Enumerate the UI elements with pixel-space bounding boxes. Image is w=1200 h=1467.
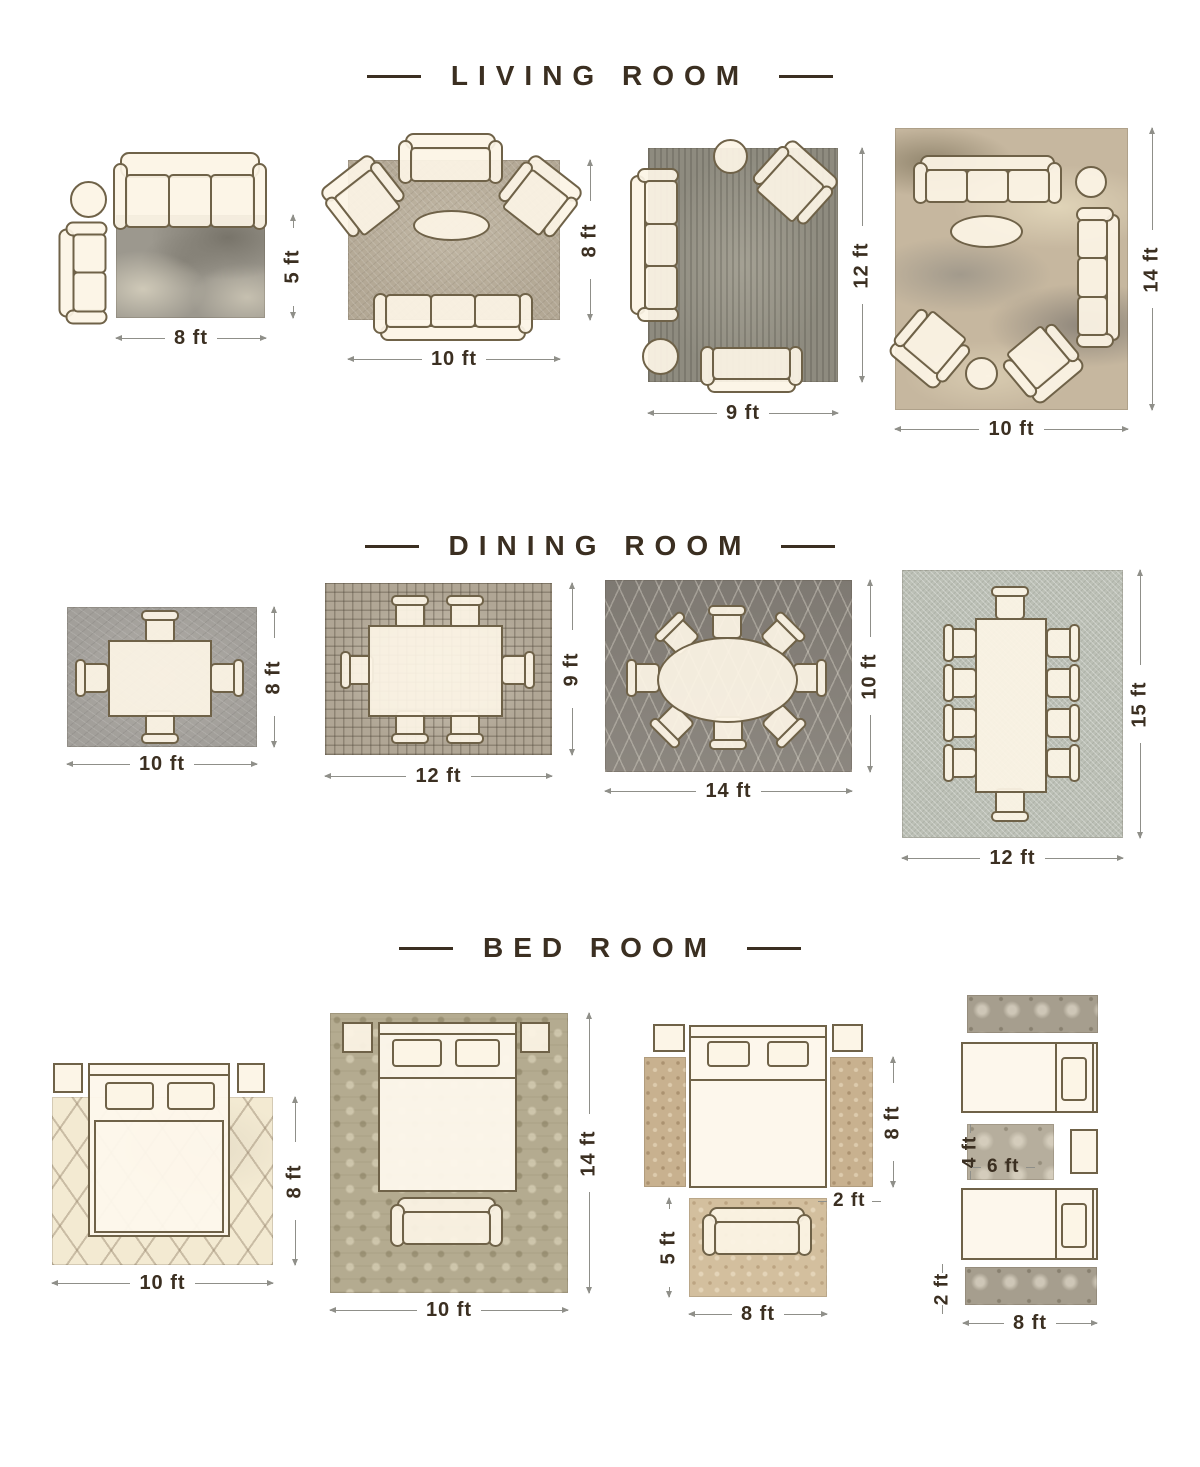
dimension-line bbox=[325, 776, 406, 777]
dimension-line bbox=[67, 764, 130, 765]
dimension-label: 6 ft bbox=[987, 1156, 1020, 1178]
dimension-foot-rug-height: 5 ft bbox=[657, 1198, 681, 1297]
settee bbox=[700, 345, 803, 393]
dimension-label: 2 ft bbox=[930, 1278, 954, 1300]
dimension-width: 9 ft bbox=[648, 402, 838, 424]
dimension-label: 14 ft bbox=[705, 780, 751, 803]
dimension-label: 14 ft bbox=[1140, 239, 1164, 299]
pillow bbox=[167, 1082, 215, 1110]
sofa-seat bbox=[714, 1221, 800, 1255]
nightstand bbox=[237, 1063, 265, 1093]
dimension-line bbox=[274, 716, 275, 747]
dimension-line bbox=[895, 429, 979, 430]
dimension-line bbox=[116, 338, 165, 339]
bench bbox=[390, 1197, 503, 1248]
dining-chair bbox=[943, 664, 977, 702]
dimension-line bbox=[589, 1192, 590, 1293]
bench bbox=[702, 1207, 812, 1257]
headboard-line bbox=[1092, 1044, 1094, 1111]
title-dash-left bbox=[399, 947, 453, 950]
dining-chair bbox=[943, 624, 977, 662]
sofa-three-seat bbox=[913, 155, 1062, 205]
nightstand bbox=[520, 1022, 550, 1053]
sofa-cushion bbox=[712, 347, 791, 380]
dimension-label: 10 ft bbox=[431, 348, 477, 371]
sofa-cushion bbox=[925, 169, 968, 203]
dining-table bbox=[975, 618, 1047, 793]
nightstand bbox=[832, 1024, 863, 1052]
dining-chair bbox=[943, 704, 977, 742]
dimension-line bbox=[972, 1167, 981, 1168]
dimension-runner-height: 8 ft bbox=[881, 1057, 905, 1187]
dimension-line bbox=[942, 1264, 943, 1273]
dimension-line bbox=[590, 160, 591, 201]
dimension-label: 2 ft bbox=[833, 1190, 866, 1212]
title-dash-right bbox=[781, 545, 835, 548]
dimension-line bbox=[870, 580, 871, 637]
sofa-cushion bbox=[385, 294, 432, 327]
dimension-runner-height: 2 ft bbox=[930, 1264, 954, 1308]
section-title-text: BED ROOM bbox=[483, 932, 717, 964]
pillow bbox=[105, 1082, 154, 1110]
bedside-runner-rug bbox=[644, 1057, 686, 1187]
dimension-line bbox=[589, 1013, 590, 1114]
dimension-line bbox=[818, 1201, 827, 1202]
dimension-line bbox=[348, 359, 422, 360]
dimension-line bbox=[648, 413, 717, 414]
twin-bed bbox=[961, 1042, 1098, 1113]
dimension-width: 10 ft bbox=[67, 753, 257, 775]
pillow bbox=[707, 1041, 750, 1067]
dimension-line bbox=[963, 1323, 1004, 1324]
dining-table bbox=[108, 640, 212, 717]
sofa-seat bbox=[1077, 219, 1108, 336]
dimension-line bbox=[52, 1283, 130, 1284]
sofa-seat bbox=[125, 174, 255, 228]
dimension-line bbox=[217, 338, 266, 339]
sofa-cushion bbox=[210, 174, 255, 228]
sofa-cushion bbox=[474, 294, 521, 327]
sofa-cushion bbox=[1077, 257, 1108, 297]
dimension-line bbox=[689, 1314, 732, 1315]
dining-chair bbox=[75, 659, 109, 697]
dimension-runner-width: 2 ft bbox=[818, 1190, 892, 1212]
sofa-three-seat bbox=[630, 168, 680, 322]
dimension-line bbox=[295, 1097, 296, 1142]
dimension-label: 8 ft bbox=[262, 647, 286, 707]
dining-chair bbox=[991, 586, 1029, 620]
dimension-label: 8 ft bbox=[578, 210, 602, 270]
sofa-cushion bbox=[125, 174, 170, 228]
dining-chair bbox=[391, 595, 429, 629]
dimension-line bbox=[1044, 429, 1128, 430]
runner-rug bbox=[965, 1267, 1097, 1305]
round-side-table bbox=[1075, 166, 1107, 198]
dimension-label: 10 ft bbox=[139, 753, 185, 776]
dimension-width: 10 ft bbox=[330, 1299, 568, 1321]
dimension-label: 15 ft bbox=[1128, 674, 1152, 734]
sofa-seat bbox=[385, 294, 521, 327]
title-dash-right bbox=[747, 947, 801, 950]
sofa-cushion bbox=[714, 1221, 800, 1255]
dimension-line bbox=[669, 1287, 670, 1298]
dining-table bbox=[368, 625, 503, 717]
round-ottoman bbox=[642, 338, 679, 375]
dimension-width: 10 ft bbox=[52, 1272, 273, 1294]
dimension-line bbox=[1140, 570, 1141, 665]
title-dash-left bbox=[365, 545, 419, 548]
dimension-line bbox=[330, 1310, 417, 1311]
dimension-label: 12 ft bbox=[415, 765, 461, 788]
dimension-height: 14 ft bbox=[577, 1013, 601, 1293]
oval-coffee-table bbox=[413, 210, 490, 241]
dimension-height: 8 ft bbox=[578, 160, 602, 320]
dining-chair bbox=[1046, 744, 1080, 782]
dimension-height: 8 ft bbox=[262, 607, 286, 747]
dimension-line bbox=[1056, 1323, 1097, 1324]
section-title-dining-room: DINING ROOM bbox=[0, 530, 1200, 562]
sofa-cushion bbox=[966, 169, 1009, 203]
dimension-line bbox=[761, 791, 852, 792]
sofa-cushion bbox=[72, 234, 106, 275]
sofa-seat bbox=[402, 1211, 491, 1246]
dimension-label: 9 ft bbox=[726, 402, 760, 425]
dimension-line bbox=[1152, 128, 1153, 230]
dimension-label: 8 ft bbox=[881, 1092, 905, 1152]
dimension-line bbox=[893, 1161, 894, 1187]
dimension-line bbox=[1152, 308, 1153, 410]
dimension-width: 14 ft bbox=[605, 780, 852, 802]
dimension-label: 5 ft bbox=[657, 1218, 681, 1278]
dining-chair bbox=[1046, 704, 1080, 742]
section-title-living-room: LIVING ROOM bbox=[0, 60, 1200, 92]
title-dash-right bbox=[779, 75, 833, 78]
dimension-label: 8 ft bbox=[174, 327, 208, 350]
dimension-width: 12 ft bbox=[902, 847, 1123, 869]
sofa-seat bbox=[410, 147, 491, 182]
sofa-cushion bbox=[1077, 219, 1108, 259]
dimension-height: 14 ft bbox=[1140, 128, 1164, 410]
round-ottoman bbox=[965, 357, 998, 390]
twin-bed bbox=[961, 1188, 1098, 1260]
oval-dining-table bbox=[657, 637, 798, 723]
dining-chair bbox=[141, 610, 179, 644]
dimension-line bbox=[862, 304, 863, 382]
rug-size-guide-poster: LIVING ROOM 5 ft 8 ft bbox=[0, 0, 1200, 1467]
dimension-line bbox=[1026, 1167, 1035, 1168]
dimension-label: 8 ft bbox=[741, 1303, 775, 1326]
dimension-label: 10 ft bbox=[139, 1272, 185, 1295]
dimension-label: 8 ft bbox=[1013, 1312, 1047, 1335]
sofa-cushion bbox=[644, 223, 678, 268]
sofa-cushion bbox=[410, 147, 491, 182]
loveseat-two-seat bbox=[59, 222, 109, 325]
sofa-three-seat bbox=[373, 292, 533, 341]
dining-chair bbox=[501, 651, 535, 689]
dimension-between-rug-width: 6 ft bbox=[972, 1156, 1050, 1178]
dimension-line bbox=[942, 1305, 943, 1314]
dining-chair bbox=[1046, 664, 1080, 702]
nightstand bbox=[653, 1024, 685, 1052]
round-side-table bbox=[713, 139, 748, 174]
dimension-label: 12 ft bbox=[850, 235, 874, 295]
dining-chair bbox=[626, 659, 660, 697]
dimension-line bbox=[195, 1283, 273, 1284]
dining-chair bbox=[793, 659, 827, 697]
bed bbox=[378, 1022, 517, 1192]
section-title-text: LIVING ROOM bbox=[451, 60, 749, 92]
runner-rug bbox=[967, 995, 1098, 1033]
blanket-line bbox=[380, 1077, 515, 1079]
dining-chair bbox=[1046, 624, 1080, 662]
sofa-cushion bbox=[168, 174, 213, 228]
dimension-line bbox=[293, 306, 294, 319]
section-title-text: DINING ROOM bbox=[449, 530, 752, 562]
dimension-line bbox=[862, 148, 863, 226]
pillow bbox=[767, 1041, 809, 1067]
dimension-width: 8 ft bbox=[116, 327, 266, 349]
dimension-line bbox=[481, 1310, 568, 1311]
headboard-line bbox=[691, 1036, 825, 1038]
pillow bbox=[1061, 1203, 1087, 1248]
dimension-height: 8 ft bbox=[283, 1097, 307, 1265]
dimension-line bbox=[893, 1057, 894, 1083]
blanket bbox=[94, 1120, 224, 1233]
dining-chair bbox=[708, 605, 746, 639]
blanket-line bbox=[1055, 1190, 1057, 1258]
dimension-line bbox=[970, 1124, 971, 1133]
dimension-line bbox=[872, 1201, 881, 1202]
dimension-label: 9 ft bbox=[560, 639, 584, 699]
dimension-line bbox=[295, 1220, 296, 1265]
nightstand bbox=[53, 1063, 83, 1093]
dimension-label: 10 ft bbox=[988, 418, 1034, 441]
sofa-cushion bbox=[644, 265, 678, 310]
sofa-cushion bbox=[1077, 296, 1108, 336]
dimension-height: 15 ft bbox=[1128, 570, 1152, 838]
dimension-line bbox=[870, 715, 871, 772]
dimension-label: 8 ft bbox=[283, 1151, 307, 1211]
dimension-label: 12 ft bbox=[989, 847, 1035, 870]
dimension-line bbox=[194, 764, 257, 765]
sofa-cushion bbox=[1007, 169, 1050, 203]
sofa-seat bbox=[712, 347, 791, 380]
blanket-line bbox=[691, 1079, 825, 1081]
oval-coffee-table bbox=[950, 215, 1023, 248]
pillow bbox=[392, 1039, 442, 1067]
headboard-line bbox=[90, 1074, 228, 1076]
dimension-line bbox=[784, 1314, 827, 1315]
sofa-cushion bbox=[644, 180, 678, 225]
dimension-width: 10 ft bbox=[895, 418, 1128, 440]
pillow bbox=[1061, 1057, 1087, 1101]
dimension-line bbox=[1140, 743, 1141, 838]
dimension-line bbox=[572, 708, 573, 755]
dimension-line bbox=[486, 359, 560, 360]
dimension-label: 10 ft bbox=[426, 1299, 472, 1322]
bed bbox=[88, 1063, 230, 1237]
dimension-line bbox=[572, 583, 573, 630]
title-dash-left bbox=[367, 75, 421, 78]
dimension-line bbox=[471, 776, 552, 777]
sofa-cushion bbox=[402, 1211, 491, 1246]
dimension-foot-rug-width: 8 ft bbox=[689, 1303, 827, 1325]
dimension-height: 9 ft bbox=[560, 583, 584, 755]
dimension-line bbox=[590, 279, 591, 320]
dimension-width: 10 ft bbox=[348, 348, 560, 370]
sofa-cushion bbox=[72, 272, 106, 313]
dimension-line bbox=[1045, 858, 1123, 859]
dimension-line bbox=[769, 413, 838, 414]
dimension-line bbox=[274, 607, 275, 638]
dimension-line bbox=[669, 1198, 670, 1209]
section-title-bed-room: BED ROOM bbox=[0, 932, 1200, 964]
dimension-runner-width: 8 ft bbox=[963, 1312, 1097, 1334]
dimension-height: 12 ft bbox=[850, 148, 874, 382]
dining-chair bbox=[943, 744, 977, 782]
dimension-width: 12 ft bbox=[325, 765, 552, 787]
dimension-label: 14 ft bbox=[577, 1123, 601, 1183]
bed bbox=[689, 1025, 827, 1188]
nightstand bbox=[342, 1022, 373, 1053]
pillow bbox=[455, 1039, 500, 1067]
dimension-line bbox=[605, 791, 696, 792]
dining-chair bbox=[210, 659, 244, 697]
nightstand bbox=[1070, 1129, 1098, 1174]
sofa-three-seat bbox=[113, 152, 267, 232]
bedside-runner-rug bbox=[830, 1057, 873, 1187]
dimension-height: 10 ft bbox=[858, 580, 882, 772]
dimension-line bbox=[293, 215, 294, 228]
dimension-height: 5 ft bbox=[281, 215, 305, 318]
dimension-line bbox=[902, 858, 980, 859]
round-side-table bbox=[70, 181, 107, 218]
settee bbox=[398, 133, 503, 185]
sofa-three-seat bbox=[1075, 207, 1120, 348]
dimension-line bbox=[970, 1171, 971, 1180]
dining-chair bbox=[446, 595, 484, 629]
headboard-line bbox=[380, 1033, 515, 1035]
sofa-seat bbox=[644, 180, 678, 310]
sofa-seat bbox=[925, 169, 1050, 203]
dimension-label: 10 ft bbox=[858, 646, 882, 706]
dimension-label: 5 ft bbox=[281, 237, 305, 297]
dining-chair bbox=[991, 788, 1029, 822]
blanket-line bbox=[1055, 1044, 1057, 1111]
headboard-line bbox=[1092, 1190, 1094, 1258]
sofa-cushion bbox=[430, 294, 477, 327]
sofa-seat bbox=[72, 234, 106, 313]
